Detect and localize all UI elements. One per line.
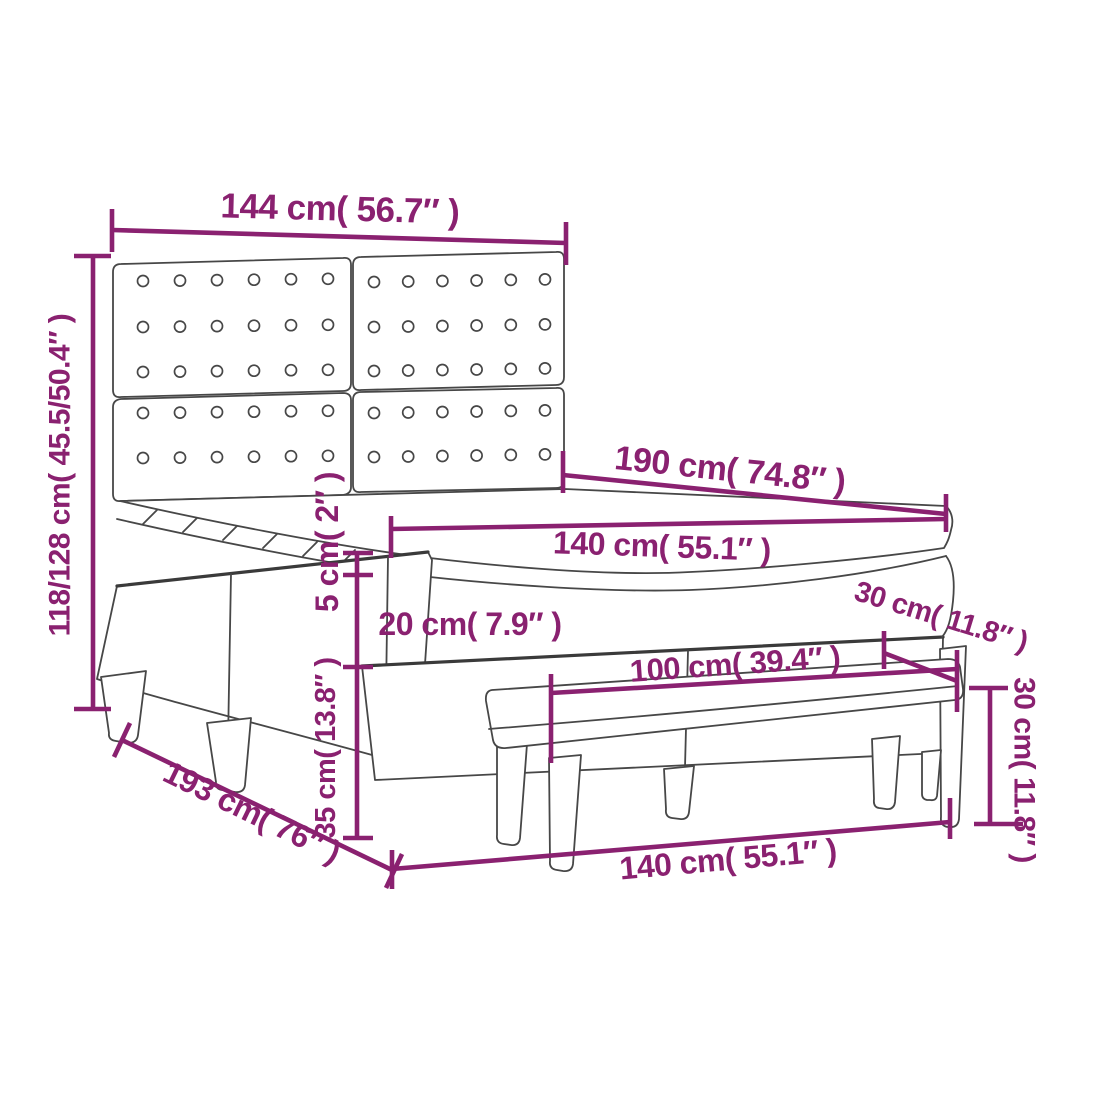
headboard-button	[175, 366, 186, 377]
headboard-panel-top-right	[353, 252, 564, 390]
headboard-button	[138, 408, 149, 419]
headboard-panel-bottom-right	[353, 388, 564, 492]
headboard-button	[249, 365, 260, 376]
headboard-button	[437, 276, 448, 287]
headboard-button	[505, 319, 516, 330]
headboard-button	[249, 320, 260, 331]
headboard-button	[175, 452, 186, 463]
headboard-button	[540, 363, 551, 374]
headboard-button	[540, 274, 551, 285]
headboard-button	[403, 276, 414, 287]
bench-leg-front-right	[922, 750, 941, 800]
headboard-button	[437, 365, 448, 376]
headboard-button	[138, 276, 149, 287]
headboard-button	[471, 406, 482, 417]
headboard-button	[403, 451, 414, 462]
headboard-button	[437, 407, 448, 418]
headboard-button	[369, 277, 380, 288]
headboard-button	[369, 452, 380, 463]
headboard-button	[323, 405, 334, 416]
headboard-button	[505, 449, 516, 460]
bench-leg-back-left	[497, 744, 527, 845]
headboard-button	[437, 321, 448, 332]
headboard-button	[471, 364, 482, 375]
headboard-button	[403, 321, 414, 332]
diagram-canvas: 144 cm( 56.7″ ) 118/128 cm( 45.5/50.4″ )…	[0, 0, 1100, 1100]
headboard-button	[175, 407, 186, 418]
headboard-button	[286, 451, 297, 462]
headboard-button	[437, 451, 448, 462]
label-headboard-width: 144 cm( 56.7″ )	[220, 186, 460, 231]
headboard-button	[249, 274, 260, 285]
headboard-button	[505, 363, 516, 374]
headboard-button	[369, 366, 380, 377]
headboard-button	[540, 319, 551, 330]
headboard-button	[369, 322, 380, 333]
headboard-button	[212, 321, 223, 332]
headboard-button	[212, 407, 223, 418]
headboard-button	[138, 453, 149, 464]
headboard-button	[212, 275, 223, 286]
headboard-button	[175, 275, 186, 286]
headboard-button	[286, 274, 297, 285]
headboard-button	[540, 449, 551, 460]
headboard-button	[471, 450, 482, 461]
headboard-button	[323, 273, 334, 284]
headboard-button	[286, 365, 297, 376]
label-overall-height: 118/128 cm( 45.5/50.4″ )	[44, 314, 77, 637]
label-mattress-width: 140 cm( 55.1″ )	[553, 524, 772, 568]
headboard-button	[249, 451, 260, 462]
headboard-button	[369, 408, 380, 419]
headboard-button	[471, 275, 482, 286]
bed-dimension-diagram: 144 cm( 56.7″ ) 118/128 cm( 45.5/50.4″ )…	[0, 0, 1100, 1100]
label-topper-height: 5 cm( 2″ )	[309, 472, 345, 612]
headboard-button	[540, 405, 551, 416]
headboard-button	[403, 407, 414, 418]
dim-line-headboard-width	[112, 230, 566, 243]
headboard-button	[249, 406, 260, 417]
headboard-button	[403, 365, 414, 376]
headboard-button	[138, 322, 149, 333]
headboard-button	[323, 450, 334, 461]
headboard-button	[212, 366, 223, 377]
headboard-button	[323, 364, 334, 375]
headboard	[113, 252, 564, 501]
headboard-button	[505, 405, 516, 416]
label-bench-height: 30 cm( 11.8″ )	[1008, 677, 1041, 863]
headboard-button	[505, 274, 516, 285]
headboard-button	[175, 321, 186, 332]
label-base-height: 35 cm( 13.8″ )	[310, 658, 342, 839]
bench-leg-back-mid	[664, 766, 694, 819]
headboard-button	[471, 320, 482, 331]
label-mattress-height: 20 cm( 7.9″ )	[378, 606, 561, 642]
headboard-button	[323, 319, 334, 330]
headboard-button	[286, 320, 297, 331]
bench-leg-back-right	[872, 736, 900, 809]
headboard-button	[138, 367, 149, 378]
headboard-button	[286, 406, 297, 417]
headboard-button	[212, 452, 223, 463]
